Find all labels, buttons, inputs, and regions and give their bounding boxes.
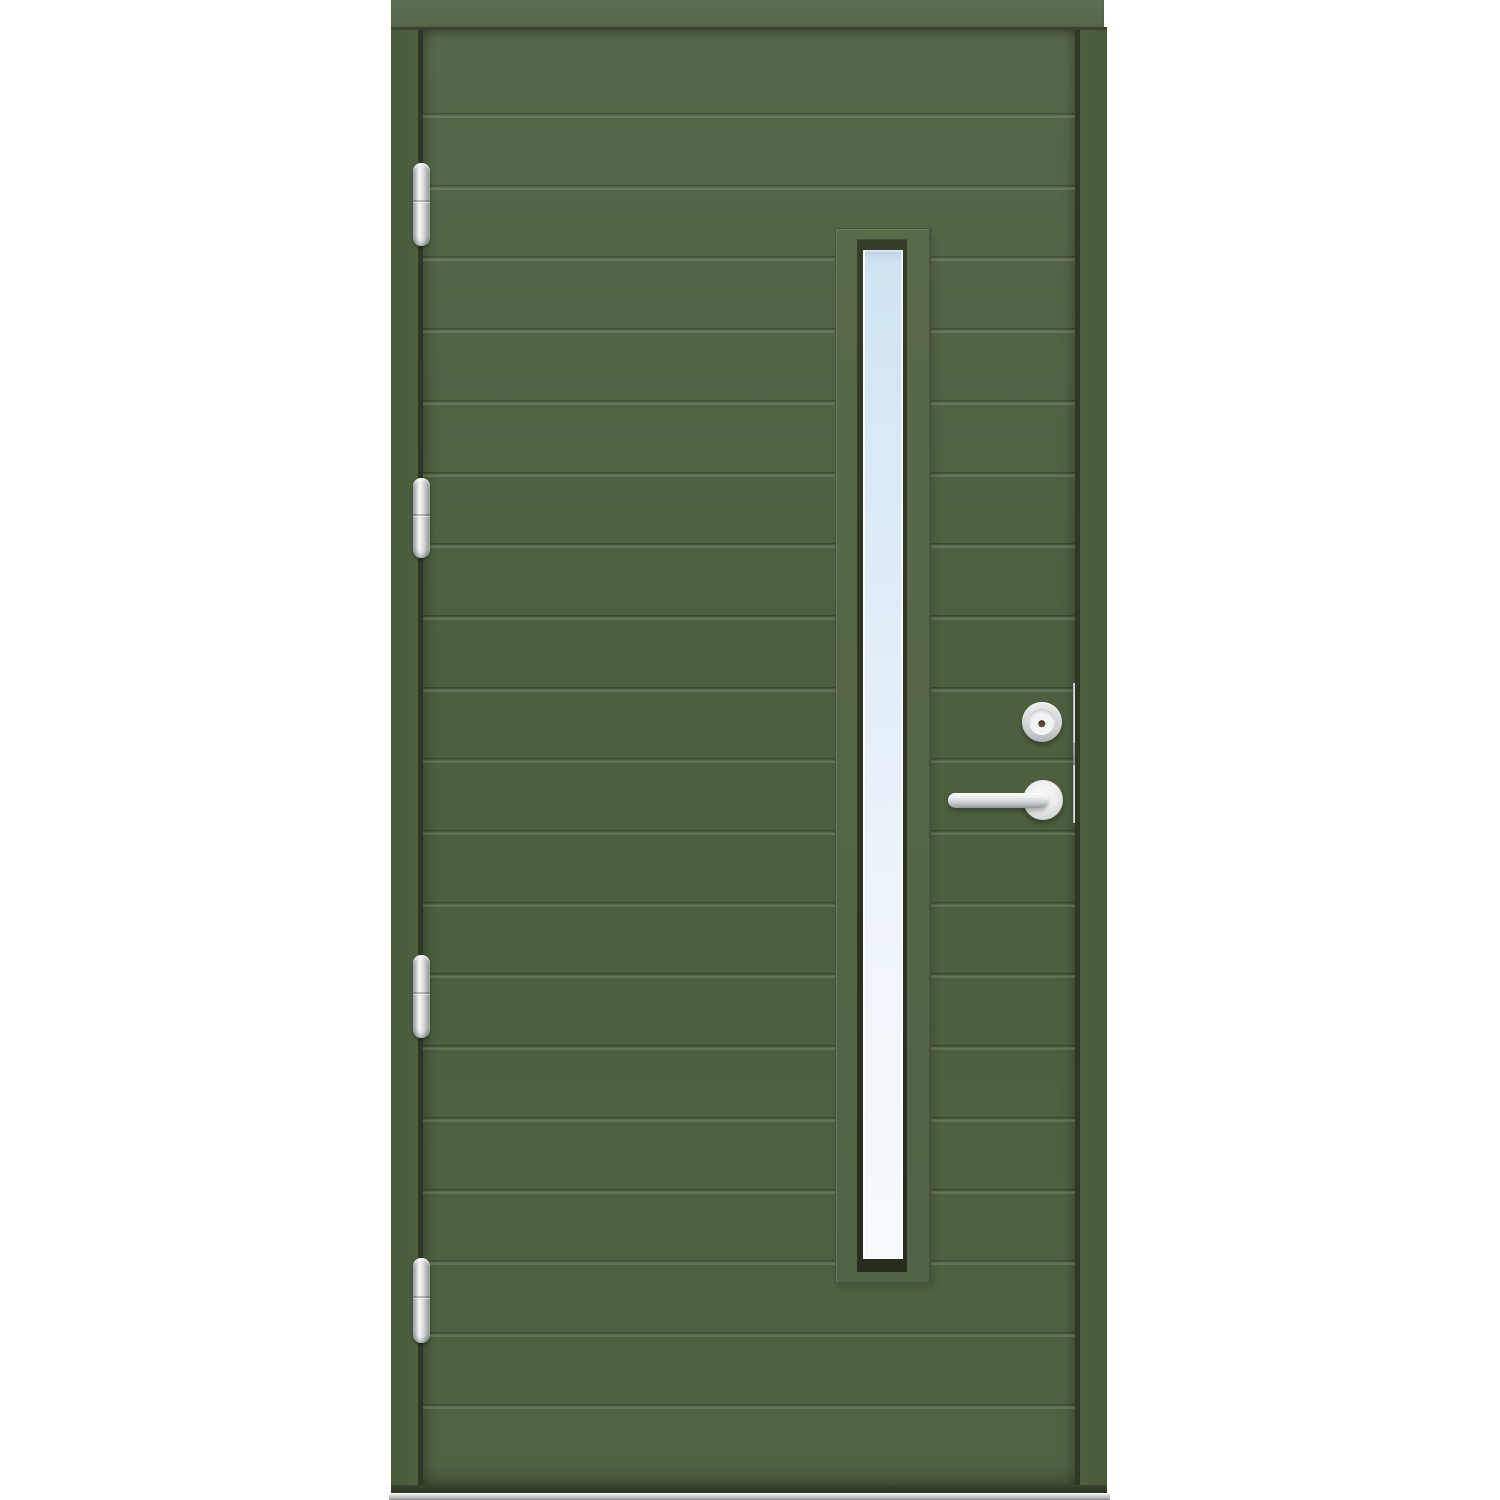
lock-cylinder-face (1029, 709, 1055, 735)
frame-head (391, 0, 1104, 27)
panel-groove (423, 1332, 1076, 1337)
panel-groove (423, 902, 1076, 907)
glazing-glass (863, 250, 903, 1259)
panel-groove (423, 400, 1076, 405)
door-handle-lever (948, 793, 1048, 808)
panel-groove (423, 687, 1076, 692)
panel-groove (423, 543, 1076, 548)
panel-groove (423, 256, 1076, 261)
panel-groove (423, 328, 1076, 333)
keyhole (1038, 721, 1045, 728)
hinge (413, 955, 430, 1038)
threshold-shadow (391, 1485, 1107, 1493)
hinge-seam (413, 200, 430, 202)
panel-groove (423, 830, 1076, 835)
product-photo-green-entry-door: { "scene": { "description": "Green exter… (0, 0, 1500, 1500)
lock-side-gap (1075, 30, 1080, 1493)
panel-groove (423, 1260, 1076, 1265)
hinge (413, 1258, 430, 1343)
hinge (413, 478, 430, 558)
panel-groove (423, 758, 1076, 763)
hinge (413, 163, 430, 246)
panel-groove (423, 185, 1076, 190)
panel-groove (423, 113, 1076, 118)
hinge-seam (413, 1296, 430, 1298)
panel-groove (423, 1404, 1076, 1409)
panel-groove (423, 615, 1076, 620)
aluminium-sill (389, 1493, 1110, 1500)
frame-head-seam (391, 27, 1107, 30)
panel-groove (423, 472, 1076, 477)
frame-right-jamb (1080, 30, 1107, 1493)
hinge-seam (413, 514, 430, 516)
panel-groove (423, 1189, 1076, 1194)
panel-groove (423, 1045, 1076, 1050)
door-leaf (423, 30, 1076, 1485)
hinge-seam (413, 992, 430, 994)
panel-groove (423, 973, 1076, 978)
door-unit (391, 0, 1107, 1500)
panel-groove (423, 1117, 1076, 1122)
lock-cylinder (1022, 702, 1062, 742)
